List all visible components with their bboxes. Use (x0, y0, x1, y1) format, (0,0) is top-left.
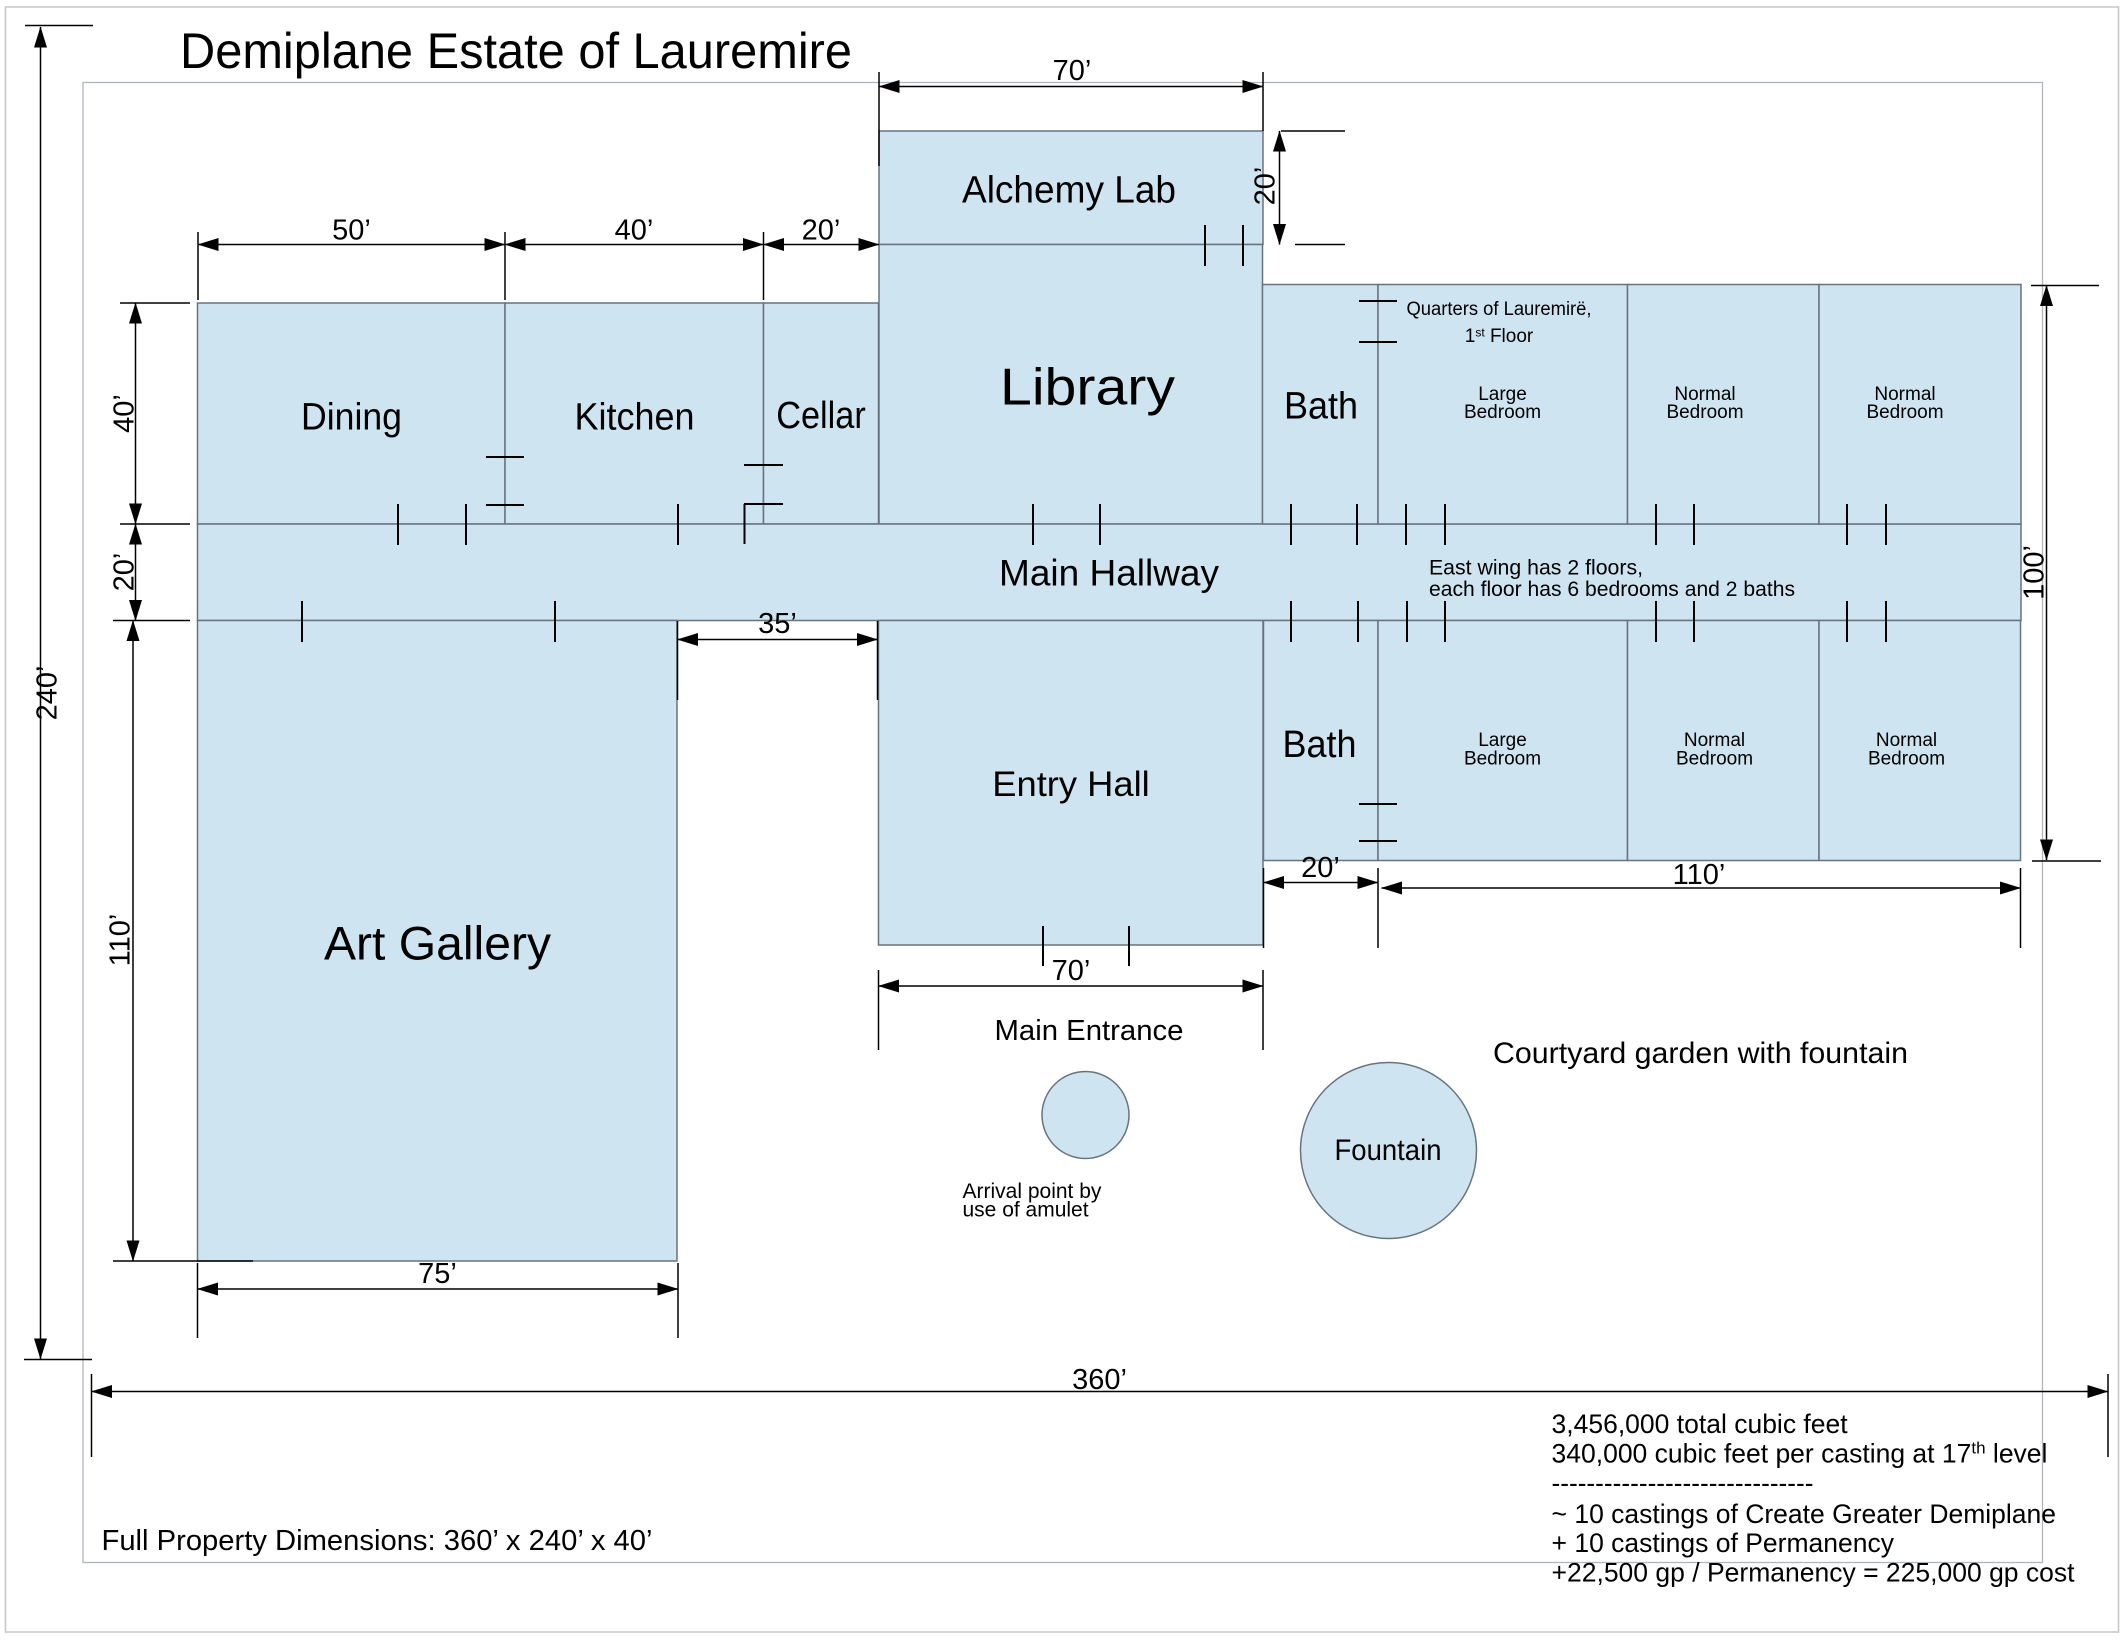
svg-text:Demiplane Estate of Lauremire: Demiplane Estate of Lauremire (180, 23, 852, 79)
svg-text:use of amulet: use of amulet (963, 1199, 1089, 1222)
svg-text:Quarters of Lauremirë,: Quarters of Lauremirë, (1407, 299, 1592, 320)
svg-text:Bedroom: Bedroom (1464, 749, 1541, 770)
svg-text:Kitchen: Kitchen (575, 397, 695, 439)
svg-text:1st Floor: 1st Floor (1465, 326, 1534, 348)
svg-text:Bath: Bath (1283, 724, 1357, 766)
svg-text:+ 10 castings of Permanency: + 10 castings of Permanency (1552, 1528, 1895, 1558)
svg-text:Entry Hall: Entry Hall (992, 765, 1150, 804)
svg-text:Bath: Bath (1284, 386, 1358, 428)
svg-text:Bedroom: Bedroom (1464, 402, 1541, 423)
svg-text:70’: 70’ (1053, 55, 1092, 87)
svg-text:Main Hallway: Main Hallway (999, 553, 1219, 594)
svg-text:Cellar: Cellar (776, 395, 866, 437)
svg-text:Main Entrance: Main Entrance (995, 1015, 1184, 1047)
svg-text:Bedroom: Bedroom (1868, 749, 1945, 770)
svg-text:+22,500 gp / Permanency = 225,: +22,500 gp / Permanency = 225,000 gp cos… (1552, 1558, 2076, 1588)
svg-text:Dining: Dining (301, 397, 402, 439)
svg-text:Bedroom: Bedroom (1666, 402, 1743, 423)
svg-text:240’: 240’ (32, 666, 64, 721)
svg-text:100’: 100’ (2019, 545, 2051, 600)
svg-text:Bedroom: Bedroom (1866, 402, 1943, 423)
svg-text:------------------------------: ------------------------------ (1552, 1468, 1814, 1498)
svg-text:360’: 360’ (1072, 1364, 1127, 1396)
svg-text:Library: Library (1000, 359, 1175, 417)
svg-text:70’: 70’ (1052, 955, 1091, 987)
svg-text:35’: 35’ (758, 608, 797, 640)
svg-text:110’: 110’ (105, 914, 137, 967)
svg-text:Alchemy Lab: Alchemy Lab (962, 170, 1176, 212)
svg-text:50’: 50’ (332, 215, 371, 247)
svg-text:3,456,000 total cubic feet: 3,456,000 total cubic feet (1552, 1409, 1849, 1439)
svg-text:Fountain: Fountain (1335, 1134, 1442, 1167)
svg-text:East wing has 2 floors,: East wing has 2 floors, (1429, 557, 1643, 580)
svg-text:Bedroom: Bedroom (1676, 749, 1753, 770)
svg-text:75’: 75’ (418, 1258, 457, 1290)
svg-text:20’: 20’ (1301, 852, 1340, 884)
svg-text:~ 10 castings of Create Greate: ~ 10 castings of Create Greater Demiplan… (1552, 1499, 2057, 1529)
svg-text:40’: 40’ (109, 394, 141, 433)
svg-text:110’: 110’ (1673, 859, 1726, 891)
svg-text:Art Gallery: Art Gallery (324, 917, 551, 970)
svg-text:20’: 20’ (109, 553, 141, 592)
svg-text:40’: 40’ (615, 215, 654, 247)
svg-text:20’: 20’ (802, 215, 841, 247)
svg-text:Full Property Dimensions: 360’: Full Property Dimensions: 360’ x 240’ x … (102, 1525, 653, 1557)
svg-text:each floor has 6 bedrooms and: each floor has 6 bedrooms and 2 baths (1429, 578, 1795, 601)
svg-text:20’: 20’ (1250, 167, 1282, 206)
svg-text:Courtyard garden with fountain: Courtyard garden with fountain (1493, 1037, 1908, 1070)
